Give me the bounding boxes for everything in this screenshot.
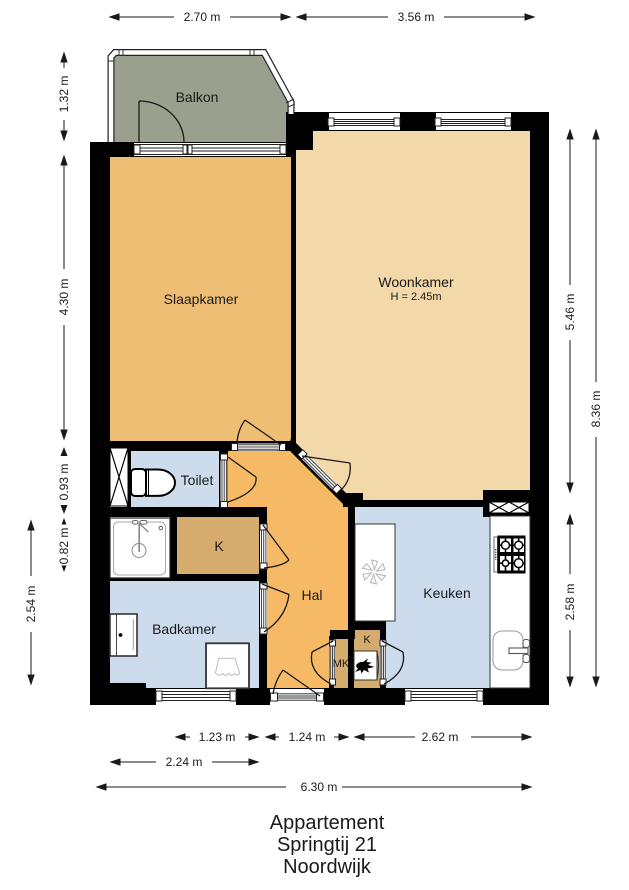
svg-text:1.23 m: 1.23 m [199,730,236,744]
svg-text:5.46 m: 5.46 m [563,294,577,331]
svg-text:6.30 m: 6.30 m [301,780,338,794]
svg-text:Springtij 21: Springtij 21 [277,834,377,856]
svg-text:Appartement: Appartement [270,812,385,834]
svg-text:Badkamer: Badkamer [152,621,216,637]
svg-text:K: K [214,538,224,554]
svg-text:8.36 m: 8.36 m [589,391,603,428]
svg-text:2.24 m: 2.24 m [166,755,203,769]
svg-text:Woonkamer: Woonkamer [378,274,454,290]
svg-text:Noordwijk: Noordwijk [283,856,372,878]
svg-text:Hal: Hal [301,587,322,603]
svg-text:K: K [363,634,371,646]
svg-text:2.70 m: 2.70 m [184,10,221,24]
svg-text:Slaapkamer: Slaapkamer [164,291,239,307]
svg-text:4.30 m: 4.30 m [57,279,71,316]
svg-text:0.93 m: 0.93 m [57,464,71,501]
svg-text:1.24 m: 1.24 m [289,730,326,744]
svg-text:2.62 m: 2.62 m [422,730,459,744]
svg-text:Toilet: Toilet [181,472,214,488]
svg-text:Balkon: Balkon [176,89,219,105]
svg-text:2.54 m: 2.54 m [24,586,38,623]
svg-text:H = 2.45m: H = 2.45m [390,291,441,303]
svg-text:3.56 m: 3.56 m [398,10,435,24]
svg-text:1.32 m: 1.32 m [57,76,71,113]
svg-text:MK: MK [333,658,350,670]
svg-text:Keuken: Keuken [423,585,470,601]
svg-text:0.82 m: 0.82 m [57,528,71,565]
svg-text:2.58 m: 2.58 m [563,584,577,621]
